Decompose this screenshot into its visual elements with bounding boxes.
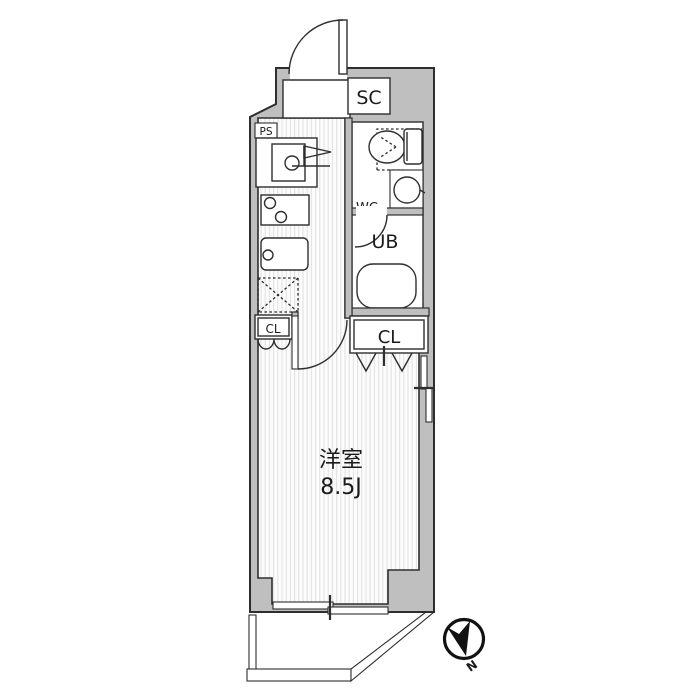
floor-plan: SC WC UB PS — [0, 0, 700, 700]
pipe-space-label: PS — [260, 126, 273, 138]
kitchen-sink-icon — [261, 238, 308, 270]
balcony-left-rail — [249, 615, 256, 671]
entrance-hall — [283, 80, 350, 118]
compass: N — [445, 620, 484, 675]
balcony-window-pane-2 — [328, 607, 388, 614]
balcony-window-pane-1 — [273, 602, 333, 609]
room-name-label: 洋室 — [319, 448, 363, 473]
bathtub-icon — [357, 264, 416, 308]
closet-kitchen-label: CL — [265, 322, 280, 336]
ub-closet-wall — [352, 308, 429, 316]
balcony-bottom-rail — [247, 669, 351, 681]
closet-room-label: CL — [378, 327, 401, 348]
side-window-pane-1 — [421, 356, 427, 389]
side-window-pane-2 — [426, 388, 432, 422]
bathroom-block: WC UB — [352, 122, 429, 316]
balcony — [247, 612, 434, 681]
balcony-diagonal-rail — [351, 612, 434, 681]
ub-door-gap — [356, 206, 387, 217]
room-size-label: 8.5J — [320, 475, 361, 500]
unit-bath-label: UB — [372, 231, 399, 253]
shoe-closet-label: SC — [356, 87, 381, 109]
washing-machine-pan — [256, 138, 317, 187]
corridor-bathroom-wall — [345, 118, 352, 318]
room-door-leaf — [292, 316, 298, 369]
toilet-bowl-icon — [369, 131, 405, 163]
entrance-door-leaf — [339, 20, 347, 74]
floorplan-page: SC WC UB PS — [0, 0, 700, 700]
entrance-door-arc — [289, 20, 343, 74]
